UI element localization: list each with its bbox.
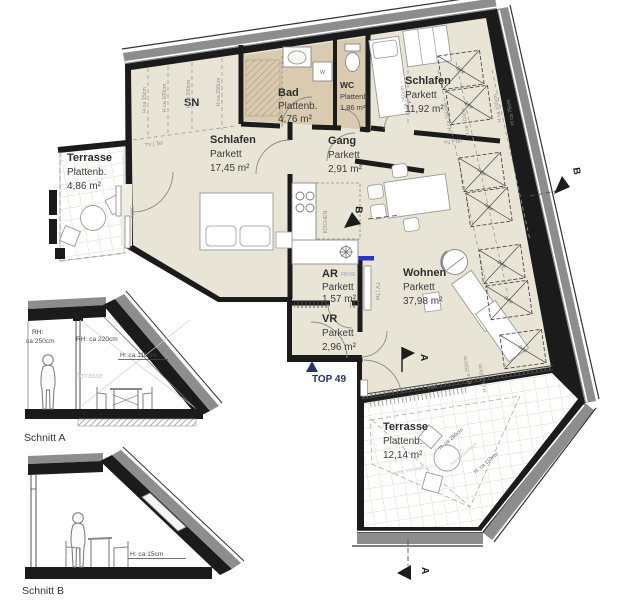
svg-text:Parkett: Parkett [322, 282, 354, 293]
kitchen-label: KOCHEN [323, 210, 329, 233]
section-b-h-floor: H: ca 15cm [130, 551, 164, 558]
svg-text:B: B [570, 167, 582, 176]
svg-text:Parkett: Parkett [210, 149, 242, 160]
svg-text:A: A [419, 567, 430, 574]
svg-text:Bad: Bad [278, 87, 299, 99]
svg-text:11,92 m²: 11,92 m² [405, 104, 444, 115]
room-terrasse-lower-label: Terrasse Plattenb. 12,14 m² [383, 421, 428, 461]
svg-text:Schlafen: Schlafen [405, 75, 451, 87]
svg-text:Parkett: Parkett [322, 328, 354, 339]
floor-plan-svg: KOCHEN W [0, 0, 640, 606]
ar-fbh-tag: FBH/E [341, 272, 356, 278]
svg-text:Plattenb.: Plattenb. [340, 92, 370, 101]
shower [246, 60, 280, 116]
entry-arrow-icon [306, 361, 318, 372]
section-a-rh-label: RH: [32, 329, 44, 336]
person-figure [71, 513, 85, 567]
section-a-furniture [97, 387, 152, 409]
section-a-rh-left: ca 250cm [26, 338, 55, 345]
height-label: H ca 15cm [142, 87, 148, 113]
svg-text:Plattenb.: Plattenb. [67, 167, 106, 178]
person-figure [41, 355, 55, 409]
svg-text:4,76 m²: 4,76 m² [278, 114, 313, 125]
tv-board [364, 266, 371, 310]
svg-text:37,98 m²: 37,98 m² [403, 296, 443, 307]
svg-text:A: A [418, 354, 429, 361]
toilet [345, 44, 360, 72]
svg-text:Gang: Gang [328, 135, 356, 147]
svg-text:12,14 m²: 12,14 m² [383, 450, 423, 461]
height-label: H ca 200cm [186, 79, 192, 108]
floor-plan-sheet: KOCHEN W [0, 0, 640, 606]
section-a-drawing: RH: ca 250cm RH: ca 220cm H: ca 110cm Te… [24, 291, 222, 444]
washing-machine: W [313, 62, 332, 81]
section-a-h-terrace: H: ca 110cm [120, 352, 157, 359]
svg-text:1,86 m²: 1,86 m² [340, 103, 366, 112]
height-label: H ca 250cm [216, 77, 222, 106]
svg-text:Parkett: Parkett [403, 282, 435, 293]
section-a-title: Schnitt A [24, 432, 65, 444]
svg-text:Parkett: Parkett [328, 150, 360, 161]
section-a-terrace-watermark: Terrasse [76, 373, 103, 380]
svg-text:AR: AR [322, 268, 338, 280]
section-arrow-icon [397, 565, 411, 580]
svg-text:17,45 m²: 17,45 m² [210, 163, 250, 174]
stufe-label: Stufe [128, 206, 135, 219]
height-label: H ca 100cm [162, 83, 168, 112]
svg-text:B: B [352, 206, 364, 214]
svg-text:2,96 m²: 2,96 m² [322, 342, 357, 353]
tv-tel-label: TV | Tel [374, 282, 380, 300]
section-b-title: Schnitt B [22, 585, 64, 597]
svg-text:WC: WC [340, 80, 354, 90]
section-a-rh-right: RH: ca 220cm [76, 336, 118, 343]
svg-text:Plattenb.: Plattenb. [278, 101, 317, 112]
svg-text:Plattenb.: Plattenb. [383, 436, 422, 447]
svg-text:Schlafen: Schlafen [210, 134, 256, 146]
svg-text:4,86 m²: 4,86 m² [67, 181, 102, 192]
svg-text:Wohnen: Wohnen [403, 267, 446, 279]
wall-niche [361, 380, 368, 396]
svg-text:1,57 m²: 1,57 m² [322, 294, 357, 305]
wardrobe-schlafen-2 [403, 25, 452, 67]
svg-text:2,91 m²: 2,91 m² [328, 164, 363, 175]
entry-marker: TOP 49 [306, 361, 346, 385]
section-b-drawing: H: ca 15cm Schnitt B [22, 447, 244, 597]
svg-text:VR: VR [322, 313, 337, 325]
floor-plan: KOCHEN W [49, 0, 599, 580]
svg-text:Parkett: Parkett [405, 90, 437, 101]
unit-label: TOP 49 [312, 374, 347, 385]
svg-text:Terrasse: Terrasse [67, 152, 112, 164]
svg-text:Terrasse: Terrasse [383, 421, 428, 433]
section-arrow-icon [554, 176, 570, 194]
